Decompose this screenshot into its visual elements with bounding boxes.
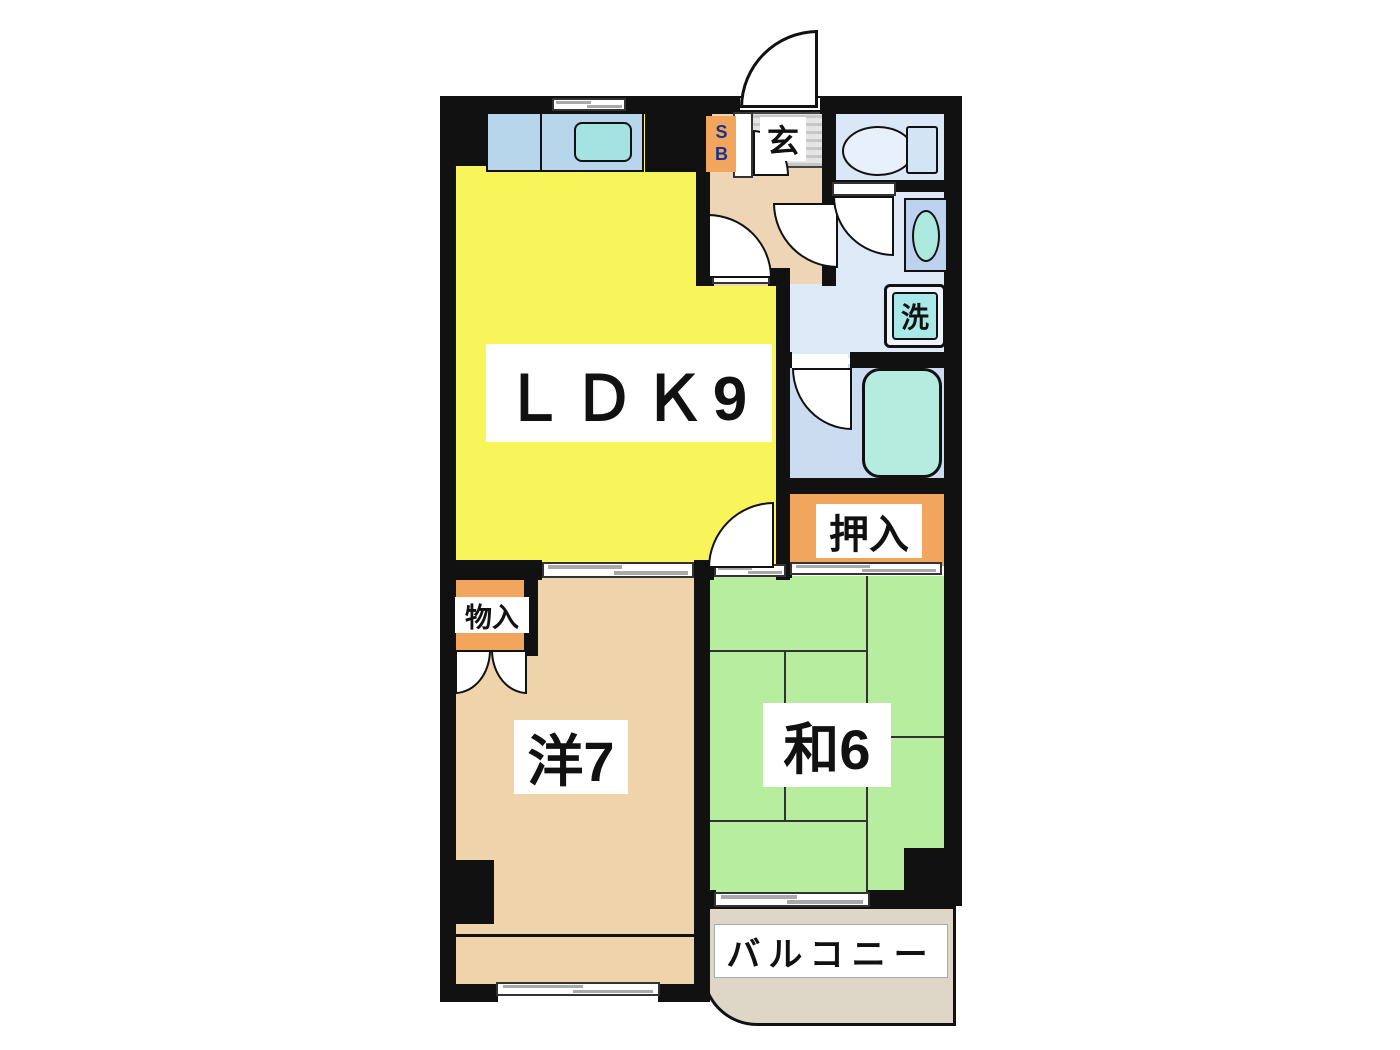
wall <box>820 96 962 114</box>
toilet-icon <box>842 126 914 176</box>
entrance-door-arc <box>740 30 818 108</box>
wall <box>850 352 952 368</box>
label-genkan: 玄 <box>760 117 806 161</box>
room-washroom-lower <box>786 284 834 358</box>
wall <box>694 890 716 908</box>
room-label-western: 洋7 <box>514 720 628 794</box>
wall <box>658 984 710 1002</box>
wall <box>776 494 790 566</box>
wall <box>694 580 710 1002</box>
room-label-japanese: 和6 <box>763 703 891 787</box>
floor-plan: 洗 SB ＬＤＫ9 洋7 和6 押入 物入 玄 バルコニー <box>0 0 1400 1050</box>
sliding-door-ldk-western <box>542 562 694 578</box>
shoe-box: SB <box>706 116 736 172</box>
room-label-ldk: ＬＤＫ9 <box>486 344 772 442</box>
pillar <box>904 848 946 900</box>
washing-machine-icon: 洗 <box>892 292 938 340</box>
kitchen-counter-divider <box>540 114 542 170</box>
toilet-tank-icon <box>906 126 938 174</box>
sink-basin-icon <box>912 210 940 262</box>
kitchen-window <box>552 98 626 111</box>
bathroom-doorway <box>792 354 848 368</box>
tatami-line <box>708 650 868 652</box>
washing-machine-label: 洗 <box>901 296 929 336</box>
wall <box>776 478 962 494</box>
shoe-box-label: SB <box>711 122 732 166</box>
sliding-door-oshiire <box>790 562 942 575</box>
wall <box>440 560 542 580</box>
tatami-line <box>708 820 868 822</box>
kitchen-sink-icon <box>574 122 632 162</box>
bathtub-icon <box>862 368 942 478</box>
label-oshiire: 押入 <box>816 504 922 558</box>
sliding-window-western-bottom <box>496 982 660 996</box>
toilet-door-leaf <box>832 182 896 196</box>
pillar <box>440 860 494 924</box>
bay-window-line <box>452 934 698 937</box>
wall <box>440 984 498 1002</box>
sliding-window-balcony <box>714 892 870 907</box>
genkan-door-leaf <box>733 112 753 178</box>
label-monoire: 物入 <box>455 597 529 633</box>
label-balcony: バルコニー <box>714 924 948 978</box>
wall <box>784 352 792 368</box>
